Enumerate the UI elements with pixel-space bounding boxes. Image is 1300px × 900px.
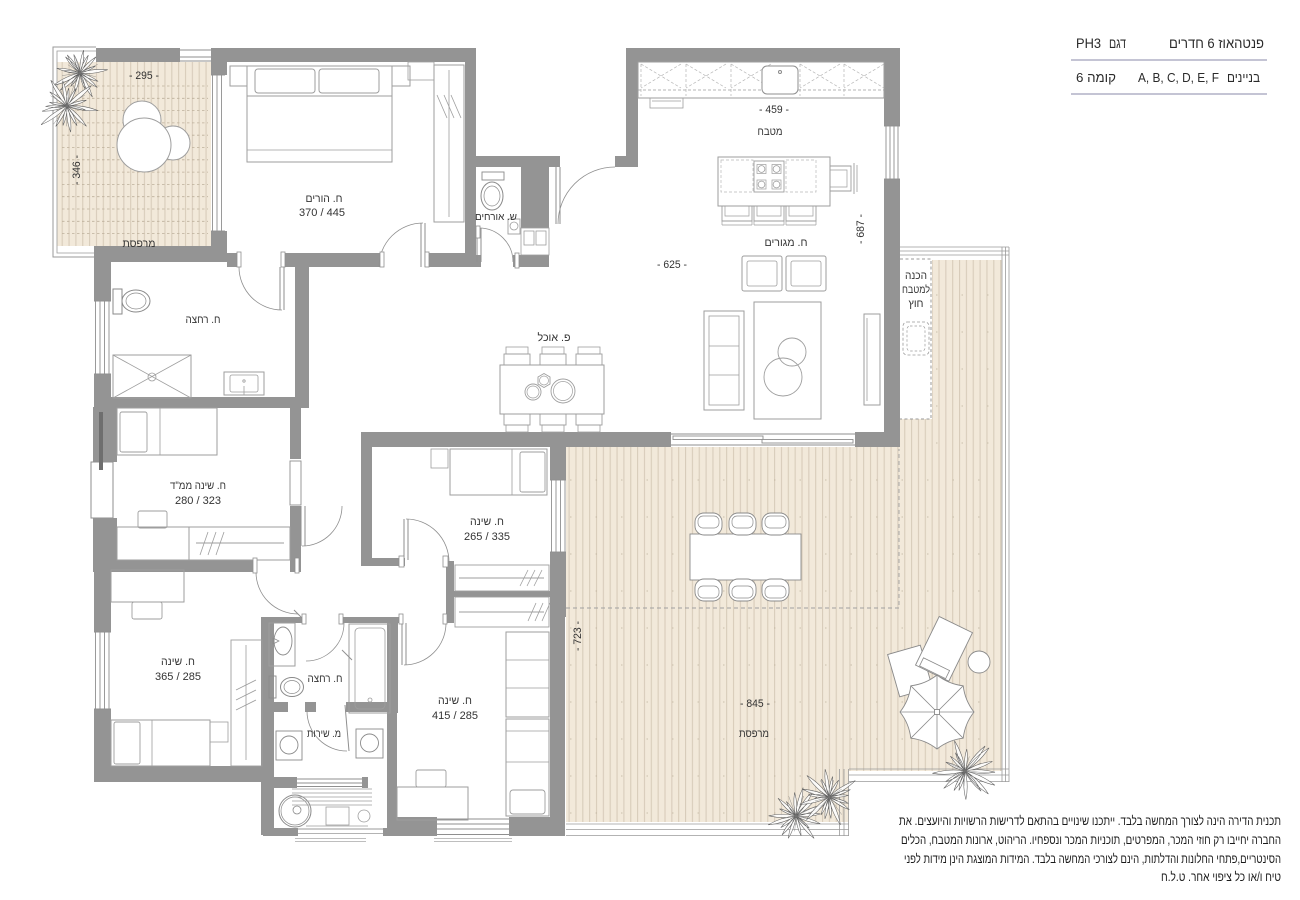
svg-text:415 / 285: 415 / 285 bbox=[432, 710, 478, 722]
svg-text:- 723 -: - 723 - bbox=[572, 621, 584, 651]
svg-text:A, B, C, D, E, F: A, B, C, D, E, F bbox=[1138, 70, 1219, 85]
svg-text:ח. הורים: ח. הורים bbox=[306, 193, 343, 205]
svg-text:365 / 285: 365 / 285 bbox=[155, 671, 201, 683]
svg-text:- 295 -: - 295 - bbox=[129, 70, 159, 82]
svg-text:ש. אורחים: ש. אורחים bbox=[475, 212, 517, 223]
svg-text:הסינטריים,פתחי החלונות והדלתות: הסינטריים,פתחי החלונות והדלתות, הינם לצו… bbox=[904, 852, 1281, 866]
svg-text:- 625 -: - 625 - bbox=[657, 259, 687, 271]
svg-text:370 / 445: 370 / 445 bbox=[299, 207, 345, 219]
svg-text:תכנית הדירה הינה לצורך המחשה ב: תכנית הדירה הינה לצורך המחשה בלבד. ייתכנ… bbox=[899, 814, 1281, 828]
svg-text:- 459 -: - 459 - bbox=[759, 104, 789, 116]
svg-text:פ. אוכל: פ. אוכל bbox=[538, 331, 571, 344]
svg-text:ח. רחצה: ח. רחצה bbox=[308, 673, 343, 685]
svg-text:החברה יחייבו רק חוזי המכר, המפ: החברה יחייבו רק חוזי המכר, המפרטים, תוכנ… bbox=[901, 833, 1281, 847]
svg-text:ח. שינה: ח. שינה bbox=[438, 695, 472, 707]
svg-text:קומה 6: קומה 6 bbox=[1076, 70, 1116, 85]
svg-text:בניינים: בניינים bbox=[1227, 70, 1260, 85]
svg-text:פנטהאוז 6 חדרים: פנטהאוז 6 חדרים bbox=[1169, 35, 1264, 51]
svg-text:PH3: PH3 bbox=[1076, 35, 1101, 51]
svg-text:265 / 335: 265 / 335 bbox=[464, 531, 510, 543]
svg-text:- 346 -: - 346 - bbox=[71, 155, 83, 185]
svg-text:ח. שינה: ח. שינה bbox=[470, 516, 504, 528]
svg-text:מטבח: מטבח bbox=[758, 126, 783, 138]
svg-text:- 687 -: - 687 - bbox=[855, 214, 867, 244]
svg-text:ח. מגורים: ח. מגורים bbox=[765, 237, 808, 249]
svg-text:280 / 323: 280 / 323 bbox=[175, 495, 221, 507]
svg-text:ח. רחצה: ח. רחצה bbox=[186, 314, 221, 326]
svg-text:ח. שינה: ח. שינה bbox=[161, 656, 195, 668]
svg-text:למטבח: למטבח bbox=[902, 284, 930, 296]
svg-text:מרפסת: מרפסת bbox=[739, 728, 769, 740]
svg-text:דגם: דגם bbox=[1109, 35, 1126, 51]
svg-text:- 845 -: - 845 - bbox=[740, 698, 770, 710]
svg-text:מרפסת: מרפסת bbox=[123, 238, 156, 250]
svg-text:מ. שירות: מ. שירות bbox=[307, 728, 341, 740]
svg-text:הכנה: הכנה bbox=[905, 270, 927, 282]
svg-text:טיח ו/או כל ציפוי אחר. ט.ל.ח: טיח ו/או כל ציפוי אחר. ט.ל.ח bbox=[1161, 870, 1281, 884]
svg-text:חוץ: חוץ bbox=[909, 298, 924, 310]
svg-text:ח. שינה ממ"ד: ח. שינה ממ"ד bbox=[170, 480, 226, 492]
